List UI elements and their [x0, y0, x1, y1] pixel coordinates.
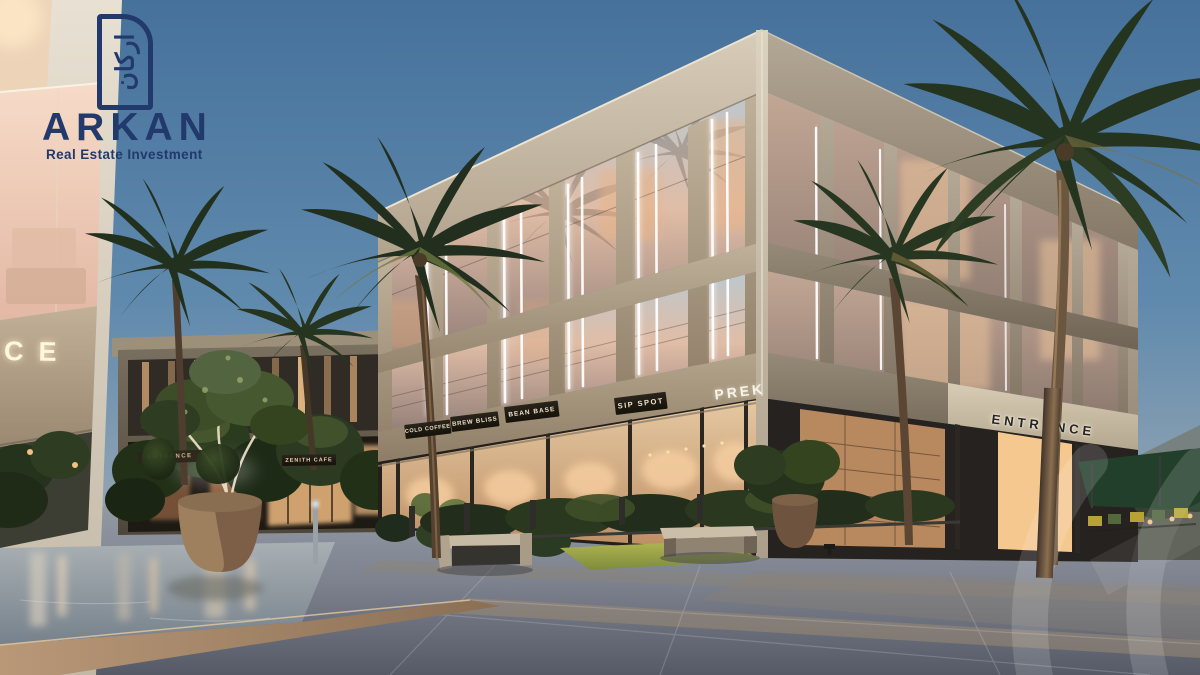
zenith-cafe-sign: ZENITH CAFE — [282, 454, 336, 466]
arkan-logomark-icon: اركان — [97, 14, 153, 110]
foliage-occluder — [142, 438, 176, 480]
foliage-occluder — [196, 444, 240, 484]
left-building-partial-sign: CE — [4, 336, 72, 368]
slab-bench — [660, 526, 760, 564]
steel-bollard — [313, 500, 319, 564]
scene-canvas: CE ENTRANCE ZENITH CAFE COLD COFFEE BREW… — [0, 0, 1200, 675]
brand-tagline: Real Estate Investment — [46, 147, 203, 162]
arkan-logo: اركان ARKAN Real Estate Investment — [0, 0, 240, 185]
brand-wordmark: ARKAN — [42, 106, 213, 150]
arkan-logomark-glyph: اركان — [110, 34, 140, 91]
